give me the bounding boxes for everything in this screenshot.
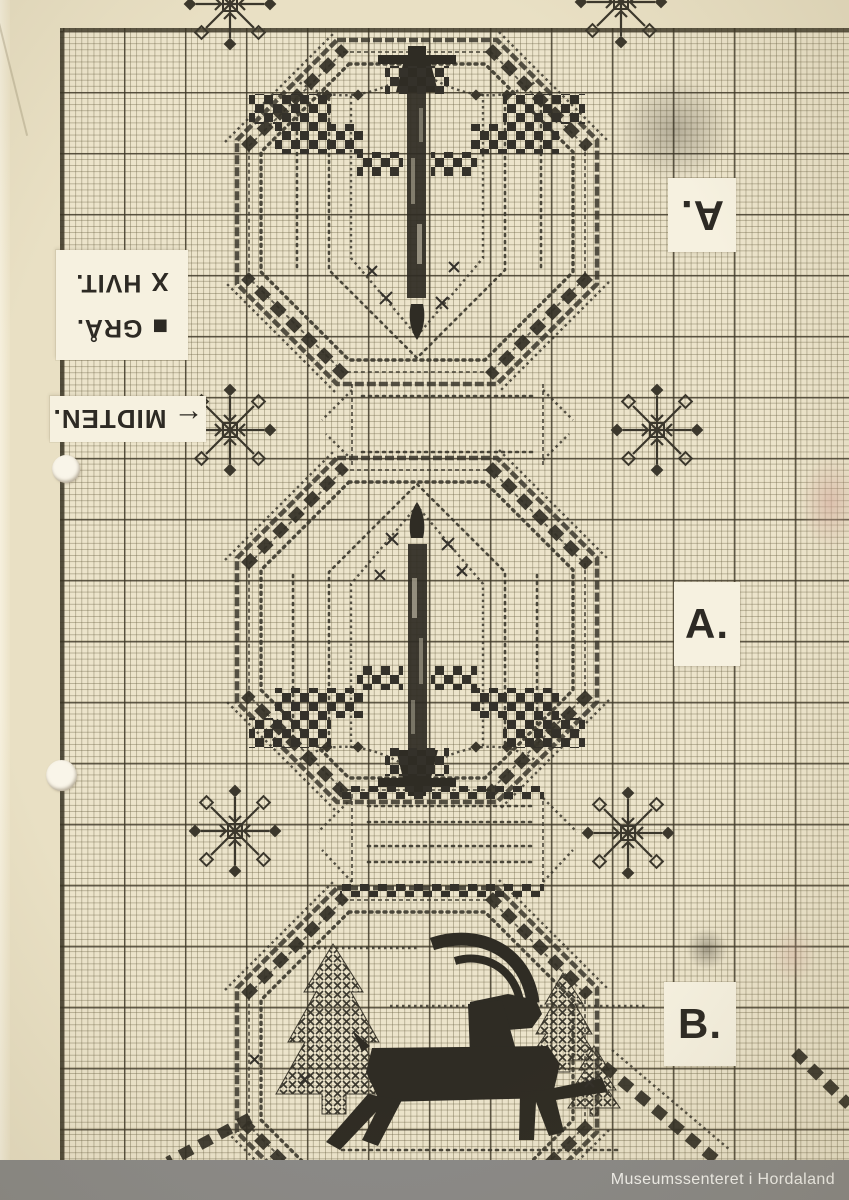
- center-marker: ← MIDTEN.: [50, 396, 206, 442]
- legend-item-white: X HVIT.: [75, 268, 168, 297]
- snowflake-icon: [575, 0, 668, 48]
- section-label-a-middle: A.: [674, 582, 740, 666]
- medallion-b: [225, 880, 648, 1200]
- color-legend: ■ GRÅ. X HVIT.: [56, 250, 188, 360]
- hole-punch: [52, 455, 80, 483]
- legend-label-gray: GRÅ.: [76, 313, 143, 342]
- connector-top: [322, 384, 573, 466]
- hole-punch: [46, 760, 77, 791]
- section-letter: A.: [685, 603, 729, 645]
- section-label-a-top: A.: [668, 178, 736, 252]
- arrow-icon: ←: [172, 404, 203, 434]
- x-stitch-icon: X: [150, 270, 168, 296]
- snowflake-icon: [184, 0, 277, 50]
- section-letter: B.: [678, 1003, 722, 1045]
- snowflake-icon: [189, 785, 282, 878]
- snowflake-icon: [611, 384, 704, 477]
- section-label-b: B.: [664, 982, 736, 1066]
- center-marker-label: MIDTEN.: [53, 404, 167, 435]
- gray-square-icon: ■: [151, 315, 168, 341]
- watermark-text: Museumssenteret i Hordaland: [611, 1171, 835, 1189]
- scanned-pattern-page: { "labels": { "top_section": "A.", "midd…: [0, 0, 849, 1200]
- snowflake-icon: [582, 787, 675, 880]
- medallion-a: [225, 450, 609, 810]
- legend-item-gray: ■ GRÅ.: [76, 313, 168, 342]
- medallion-a-inverted: [225, 32, 609, 392]
- section-letter: A.: [680, 194, 724, 236]
- legend-label-white: HVIT.: [75, 268, 141, 297]
- watermark-footer: Museumssenteret i Hordaland: [0, 1160, 849, 1200]
